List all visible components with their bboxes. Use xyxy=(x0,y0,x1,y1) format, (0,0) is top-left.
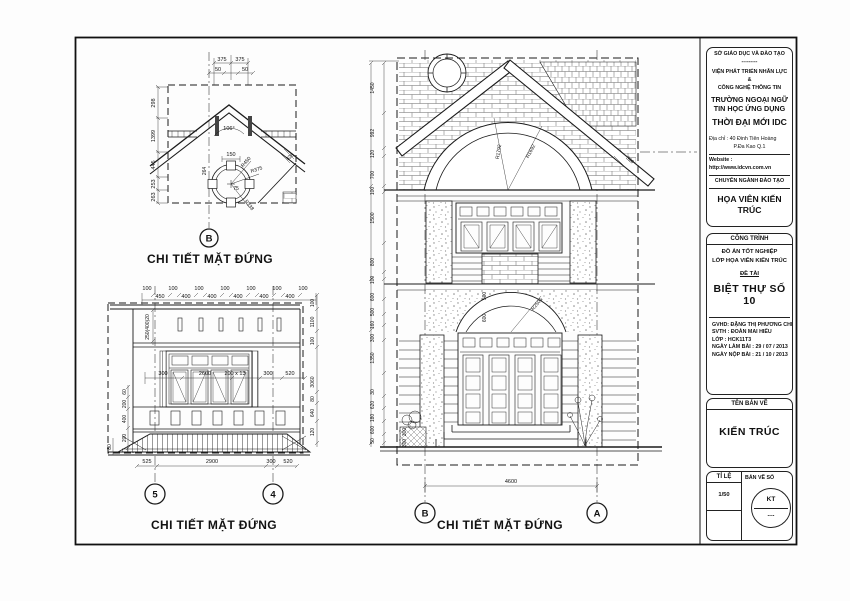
dim-label: 160 xyxy=(370,321,376,330)
dim-label: 375 xyxy=(235,57,244,63)
title-block-project: CÔNG TRÌNH ĐỒ ÁN TỐT NGHIỆP LỚP HỌA VIÊN… xyxy=(706,233,793,395)
dim-label: 253 xyxy=(151,179,157,188)
website-line: Website : http://www.idcvn.com.vn xyxy=(709,157,790,173)
dim-label: 100 xyxy=(310,299,316,308)
dim-label: 600 xyxy=(370,426,376,435)
scale-label: TỈ LỆ xyxy=(707,472,741,483)
dim-label: 1500 xyxy=(370,212,376,223)
dim-label: 500 xyxy=(482,292,488,301)
main-elevation-title: CHI TIẾT MẶT ĐỨNG xyxy=(437,517,563,532)
dim-label: 100 xyxy=(370,187,376,196)
dim-label: 100 xyxy=(194,286,203,292)
detail-b-title: CHI TIẾT MẶT ĐỨNG xyxy=(147,251,273,266)
detail-54-title: CHI TIẾT MẶT ĐỨNG xyxy=(151,517,277,532)
sheet-number-circle: KT .... xyxy=(751,488,791,528)
dim-label: 80 xyxy=(310,396,316,402)
dim-label: 445 xyxy=(151,160,157,169)
dim-label: 298 xyxy=(151,98,157,107)
project-topic: BIỆT THỰ SỐ 10 xyxy=(709,283,790,307)
gvhd-row: GVHD: ĐẶNG THỊ PHƯƠNG CHI xyxy=(709,320,790,328)
dim-label: 700 xyxy=(370,171,376,180)
school-brand: THỜI ĐẠI MỚI IDC xyxy=(709,117,790,128)
dim-label: 50 xyxy=(242,67,248,73)
dim-label: 1399 xyxy=(151,130,157,142)
dim-label: 120 xyxy=(310,428,316,437)
dim-label: 263 xyxy=(151,192,157,201)
dim-label: 200 xyxy=(122,400,128,409)
detail-54-drawing xyxy=(108,286,319,504)
dim-label: 100 xyxy=(168,286,177,292)
dim-label: 400 xyxy=(233,294,242,300)
dim-label: 400 xyxy=(285,294,294,300)
address-line: Địa chỉ : 40 Đinh Tiên Hoàng xyxy=(709,136,790,144)
title-block-org: SỞ GIÁO DỤC VÀ ĐÀO TẠO --------- VIỆN PH… xyxy=(706,47,793,227)
dim-label: 100 xyxy=(246,286,255,292)
svth-row: SVTH : ĐOÀN MAI HIẾU xyxy=(709,328,790,336)
sheet-number-label: BẢN VẼ SỐ xyxy=(742,472,792,483)
dim-label: 300 xyxy=(266,459,275,465)
grid-bubble-b-main: B xyxy=(422,509,429,520)
dim-label: 300 xyxy=(263,371,272,377)
org-separator: --------- xyxy=(709,59,790,67)
project-line: LỚP HỌA VIÊN KIẾN TRÚC xyxy=(709,257,790,266)
dim-label: 600 xyxy=(370,293,376,302)
scale-value: 1/50 xyxy=(707,491,741,500)
sheet-name-value: KIẾN TRÚC xyxy=(707,426,792,438)
address-line: P.Đa Kao Q.1 xyxy=(709,144,790,152)
detail-b-drawing xyxy=(150,52,305,247)
sheet-number-code: KT xyxy=(752,496,790,503)
topic-label: ĐỀ TÀI xyxy=(709,270,790,279)
dim-label: 620 xyxy=(370,401,376,410)
dim-label: 520 xyxy=(283,459,292,465)
dim-label: 300 xyxy=(402,439,408,448)
radius-label: R338 xyxy=(243,199,255,212)
dim-label: 2600 xyxy=(199,371,211,377)
dim-label: 500 xyxy=(370,308,376,317)
school-name: TRƯỜNG NGOẠI NGỮ xyxy=(709,95,790,105)
dim-label: 600 xyxy=(482,314,488,323)
dim-label: 300 xyxy=(370,334,376,343)
dim-label: 250(400)20 xyxy=(145,314,151,340)
dim-label: 300 xyxy=(402,428,408,437)
dim-label: 100 xyxy=(220,286,229,292)
org-line: VIỆN PHÁT TRIỂN NHÂN LỰC xyxy=(709,69,790,77)
org-line: CÔNG NGHỆ THÔNG TIN xyxy=(709,85,790,93)
title-block-scale: TỈ LỆ 1/50 BẢN VẼ SỐ KT .... xyxy=(706,471,793,541)
sheet-number-dots: .... xyxy=(752,511,790,518)
date-row: NGÀY LÀM BÀI : 29 / 07 / 2013 xyxy=(709,343,790,351)
dim-label: 450 xyxy=(155,294,164,300)
dim-label: 400 xyxy=(122,415,128,424)
dim-label: 520 xyxy=(285,371,294,377)
dim-label: 100 xyxy=(370,276,376,285)
dim-label: 640 xyxy=(310,409,316,418)
dept-label: CHUYÊN NGÀNH ĐÀO TẠO xyxy=(709,178,790,186)
dim-label: 1450 xyxy=(370,82,376,93)
dim-label: 400 xyxy=(259,294,268,300)
dim-label: 4600 xyxy=(505,479,517,485)
grid-bubble-4: 4 xyxy=(270,490,276,501)
dim-label: 100 xyxy=(310,337,316,346)
dim-label: 180 xyxy=(370,414,376,423)
school-name: TIN HỌC ỨNG DỤNG xyxy=(709,104,790,114)
dim-label: 60 xyxy=(122,389,128,395)
radius-label: R375 xyxy=(250,165,263,174)
dim-label: 3060 xyxy=(310,376,316,387)
dim-label: 200 x 13 xyxy=(224,371,245,377)
dim-label: 992 xyxy=(370,129,376,138)
dim-label: 1100 xyxy=(310,316,316,327)
dim-label: 375 xyxy=(217,57,226,63)
detail-b-labels: 375 375 50 50 298 1399 445 253 263 106° … xyxy=(147,57,296,266)
main-elevation-drawing xyxy=(369,50,697,523)
org-line: & xyxy=(709,77,790,85)
dim-label: 2900 xyxy=(206,459,218,465)
class-row: LỚP : HCK11T3 xyxy=(709,335,790,343)
dim-label: 100 xyxy=(142,286,151,292)
grid-bubble-b: B xyxy=(206,234,213,245)
dim-label: 30 xyxy=(370,389,376,395)
dim-label: 300 xyxy=(158,371,167,377)
dim-label: 800 xyxy=(370,258,376,267)
dim-label: 400 xyxy=(181,294,190,300)
dim-label: 80 xyxy=(107,444,113,450)
dim-label: 100 xyxy=(272,286,281,292)
dim-label: 400 xyxy=(207,294,216,300)
project-line: ĐỒ ÁN TỐT NGHIỆP xyxy=(709,248,790,257)
dim-label: 50 xyxy=(370,438,376,444)
dim-label: 200 xyxy=(122,434,128,443)
dim-label: 525 xyxy=(142,459,151,465)
dim-label: 328 xyxy=(285,152,295,162)
dim-label: 75 xyxy=(233,186,239,192)
org-line: SỞ GIÁO DỤC VÀ ĐÀO TẠO xyxy=(709,51,790,59)
sheet-name-label: TÊN BẢN VẼ xyxy=(707,399,792,410)
dim-label: 1350 xyxy=(370,352,376,363)
radius-label: R450 xyxy=(240,156,253,169)
title-block: SỞ GIÁO DỤC VÀ ĐÀO TẠO --------- VIỆN PH… xyxy=(704,37,796,545)
grid-bubble-5: 5 xyxy=(152,490,158,501)
dim-label: 150 xyxy=(226,152,235,158)
title-block-sheet-name: TÊN BẢN VẼ KIẾN TRÚC xyxy=(706,398,793,468)
dim-label: 50 xyxy=(215,67,221,73)
detail-54-labels: 100 100 100 100 100 100 100 450 400 400 … xyxy=(107,286,316,532)
date-row: NGÀY NỘP BÀI : 21 / 10 / 2013 xyxy=(709,350,790,358)
dept-name: HỌA VIÊN KIẾN TRÚC xyxy=(709,194,790,216)
dim-label: 120 xyxy=(370,150,376,159)
drawing-sheet: 375 375 50 50 298 1399 445 253 263 106° … xyxy=(0,0,850,601)
dim-label: 100 xyxy=(298,286,307,292)
project-header: CÔNG TRÌNH xyxy=(707,234,792,245)
angle-label: 106° xyxy=(223,126,234,132)
grid-bubble-a-main: A xyxy=(594,509,601,520)
dim-label: 264 xyxy=(202,167,208,176)
